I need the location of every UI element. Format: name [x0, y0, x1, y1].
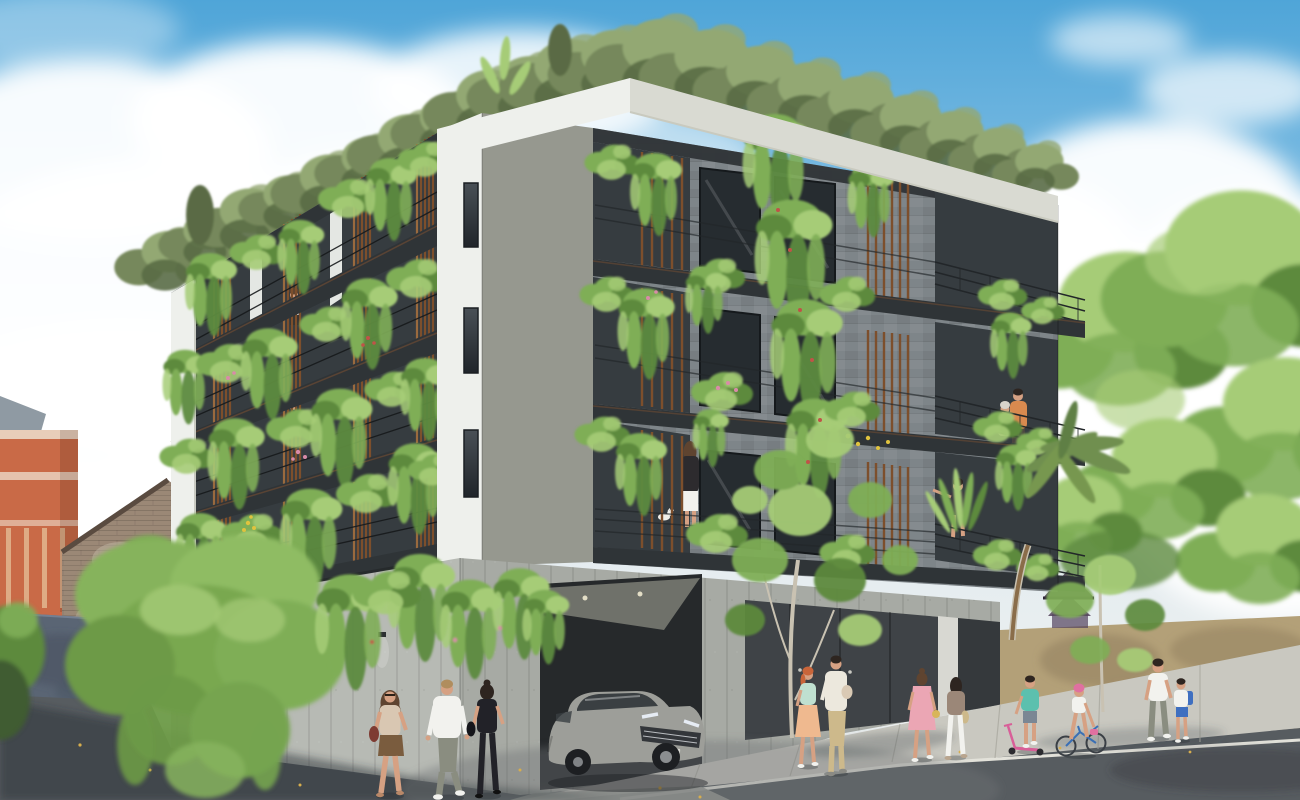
- corner-window: [464, 308, 478, 373]
- architectural-render-scene: Street-corner daytime view of a modern f…: [0, 0, 1300, 800]
- render-canvas: Street-corner daytime view of a modern f…: [0, 0, 1300, 800]
- corner-blank-wall: [482, 113, 593, 566]
- corner-window: [464, 183, 478, 247]
- corner-window: [464, 430, 478, 497]
- corner-column: [437, 113, 593, 566]
